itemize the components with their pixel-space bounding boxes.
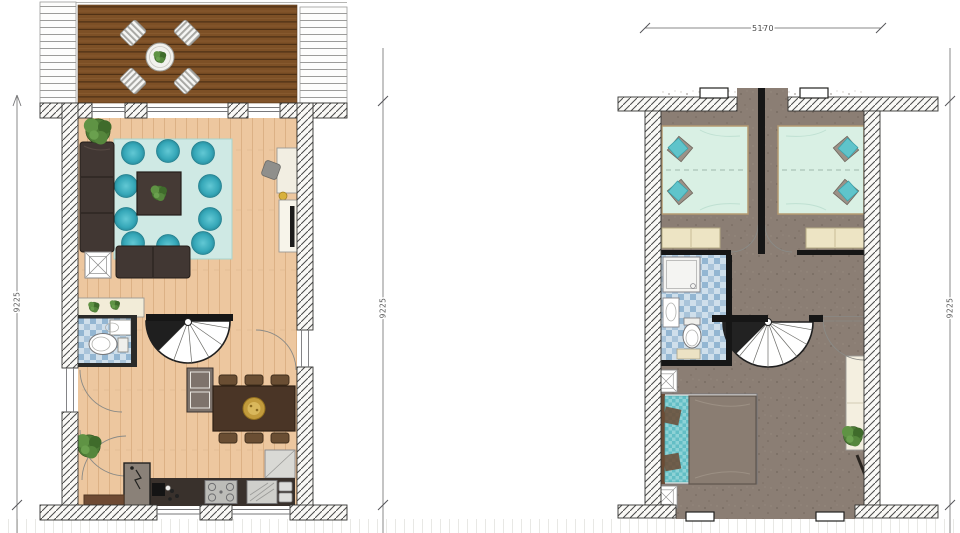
roof-window [800, 88, 828, 98]
bathroom-ground [78, 315, 137, 367]
roof-window [700, 88, 728, 98]
first-floor-plan [618, 88, 938, 521]
ground-floor-plan [40, 2, 347, 520]
decor-bowl [279, 192, 287, 200]
terrace [40, 2, 347, 103]
dimension-label-right: 9225 [946, 298, 955, 319]
dining-set [213, 375, 295, 443]
duvet [689, 396, 756, 484]
washbasin [663, 298, 679, 327]
hall-wardrobe [187, 368, 213, 412]
counter-item [152, 483, 165, 496]
bath-cabinet [677, 349, 700, 359]
roof-window [686, 512, 714, 521]
stove [205, 481, 237, 504]
washbasin [110, 320, 131, 335]
utility-closet [124, 463, 150, 506]
dimension-middle: 9225 [378, 48, 388, 533]
dimension-right: 9225 [945, 48, 955, 533]
dimension-label-left: 9225 [13, 292, 22, 313]
shower [663, 257, 700, 292]
floor-plan-drawing: 9225 9225 9225 5170 [0, 0, 960, 533]
deck-louver-right [300, 7, 347, 103]
floor-plan-page: 9225 9225 9225 5170 [0, 0, 960, 533]
deck-louver-left [40, 2, 76, 103]
dimension-label-middle: 9225 [379, 298, 388, 319]
bathroom-first [661, 255, 726, 360]
tv [290, 206, 295, 247]
bathroom-wall [131, 316, 137, 366]
sideboard [78, 298, 144, 317]
side-table [85, 252, 111, 278]
toilet [683, 318, 701, 348]
roof-window [816, 512, 844, 521]
party-wall [758, 88, 765, 254]
tv-cabinet [279, 200, 299, 252]
dimension-top: 5170 [640, 23, 886, 33]
lounge-area [114, 139, 232, 259]
master-bed [658, 394, 757, 484]
dimension-left: 9225 [12, 95, 22, 533]
dimension-label-top: 5170 [752, 24, 774, 33]
